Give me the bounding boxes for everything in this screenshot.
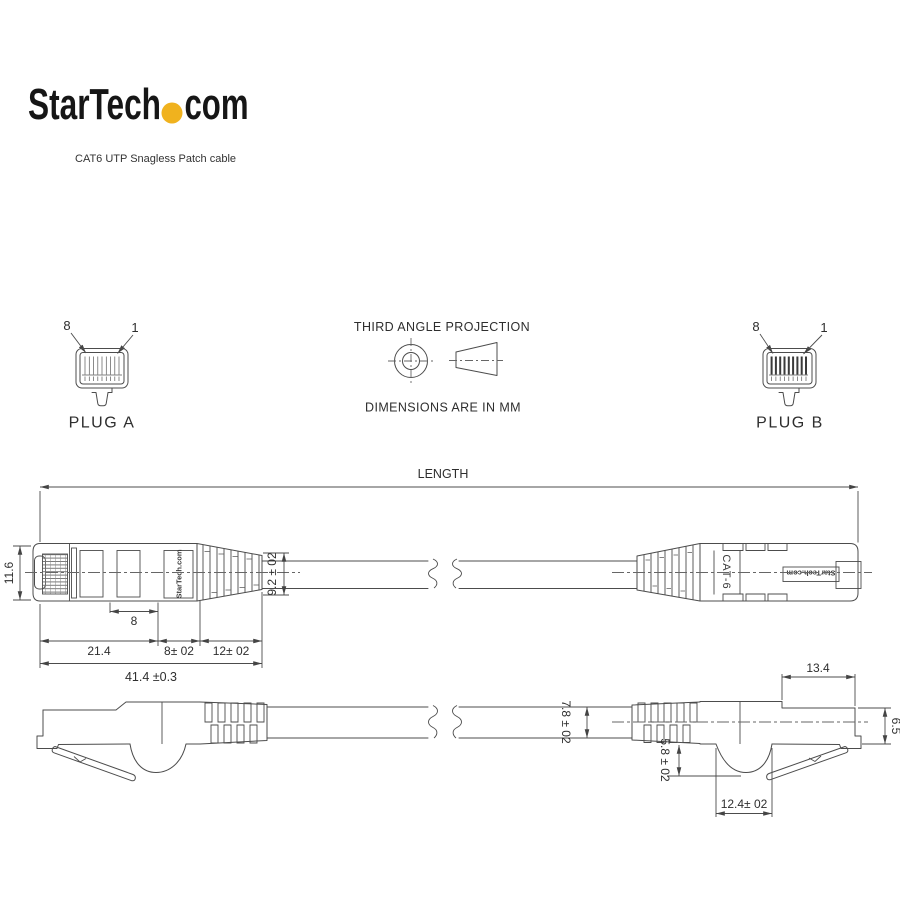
side-front-and-hook (37, 710, 130, 749)
cat6-marking: CAT-6 (720, 554, 732, 589)
plug-a-pin8-label: 8 (63, 318, 70, 333)
plug-a-latch-tab (92, 388, 112, 406)
dim-bump-width: 12.4± 02 (721, 797, 768, 811)
length-dimension: LENGTH (40, 467, 858, 543)
dim-cable-diameter: 7.8 ± 02 (559, 700, 573, 744)
dim-head-length: 13.4 (806, 661, 830, 675)
brand-logo: StarTech com CAT6 UTP Snagless Patch cab… (28, 80, 249, 165)
side-view-cable (267, 706, 632, 739)
collar-rect (72, 548, 77, 598)
side-boot-slots-b (638, 703, 697, 743)
dim-boot-section: 8± 02 (164, 644, 194, 658)
body-window-1 (80, 551, 103, 598)
ext-nose-height (858, 708, 891, 744)
top-view-drawing: StarTech.com CAT-6 StarTech.com 1 (2, 544, 872, 685)
side-boot-slots (205, 703, 264, 743)
cable-break-right-side (453, 706, 462, 739)
plug-b-contact-strip (769, 375, 808, 381)
dim-nose-height: 6.5 (889, 718, 900, 735)
plug-b-front-view: 8 1 PLUG B (752, 319, 827, 432)
plug-b-pins (772, 357, 806, 375)
plug-a-caption: PLUG A (69, 415, 136, 432)
plug-tip (836, 562, 861, 589)
plug-a-pins (85, 357, 119, 375)
plug-b-pin1-arrow (804, 335, 823, 354)
side-view-dimensions: 7.8 ± 02 13.4 6.5 5.8 ± 02 12.4± 02 (559, 661, 900, 817)
plug-a-pin1-label: 1 (131, 320, 138, 335)
plug-b-pin1-label: 1 (820, 320, 827, 335)
plug-a-pin1-arrow (118, 335, 134, 354)
plug-a-front-view: 8 1 PLUG A (63, 318, 138, 432)
plug-b-pin8-label: 8 (752, 319, 759, 334)
ext-cable-diameter (572, 707, 596, 738)
projection-symbol-block: THIRD ANGLE PROJECTION DIMENSIONS ARE IN… (354, 320, 530, 415)
logo-text-startech: StarTech (28, 80, 161, 129)
cable-break-left (429, 559, 438, 588)
top-view-cable (262, 559, 637, 589)
dim-boot-diameter: 9.2 ± 02 (265, 552, 279, 596)
side-front-and-hook-b (772, 708, 861, 749)
boot-rib-slots (205, 552, 259, 593)
side-view-left-connector (37, 702, 267, 781)
length-dim-label: LENGTH (418, 467, 469, 481)
cable-break-right (453, 559, 462, 588)
cable-drawing-svg: StarTech com CAT6 UTP Snagless Patch cab… (0, 0, 900, 900)
side-body-top-b (700, 702, 855, 709)
plug-b-pin8-arrow (760, 334, 773, 354)
side-body-top (43, 702, 200, 710)
logo-text-com: com (185, 80, 249, 129)
product-subtitle: CAT6 UTP Snagless Patch cable (75, 153, 236, 165)
cable-lines (262, 561, 637, 589)
projection-title: THIRD ANGLE PROJECTION (354, 320, 530, 334)
boot-rib-slots-b (646, 553, 693, 592)
length-extension-lines (40, 491, 858, 543)
side-boot-bump (130, 744, 200, 773)
dim-contact-section: 8 (131, 614, 138, 628)
plug-b-latch-tab (779, 388, 799, 406)
dim-boot-taper: 12± 02 (213, 644, 250, 658)
cable-break-left-side (429, 706, 438, 739)
brand-marking-vertical: StarTech.com (175, 549, 184, 598)
dim-latch-depth: 5.8 ± 02 (658, 738, 672, 782)
logo-dot-icon (162, 103, 183, 124)
cable-lines-side (267, 707, 632, 738)
projection-cone (456, 343, 497, 376)
body-window-2 (117, 551, 140, 598)
plug-b-caption: PLUG B (756, 415, 824, 432)
contact-hatch-block (43, 554, 68, 594)
units-note: DIMENSIONS ARE IN MM (365, 401, 521, 415)
latch-arm (52, 747, 135, 781)
plug-a-contact-strip (82, 375, 122, 381)
ext-head-length (782, 674, 855, 706)
brand-marking-inverted: StarTech.com (786, 569, 835, 578)
projection-crosshair (388, 338, 434, 384)
dim-overall-length: 41.4 ±0.3 (125, 670, 177, 684)
side-boot-bump-b (700, 744, 772, 773)
latch-arm-b (767, 747, 848, 780)
dim-body-length: 21.4 (87, 644, 111, 658)
side-view-drawing: 7.8 ± 02 13.4 6.5 5.8 ± 02 12.4± 02 (37, 661, 900, 817)
technical-drawing-page: StarTech com CAT6 UTP Snagless Patch cab… (0, 0, 900, 900)
dim-plug-height: 11.6 (2, 561, 16, 584)
